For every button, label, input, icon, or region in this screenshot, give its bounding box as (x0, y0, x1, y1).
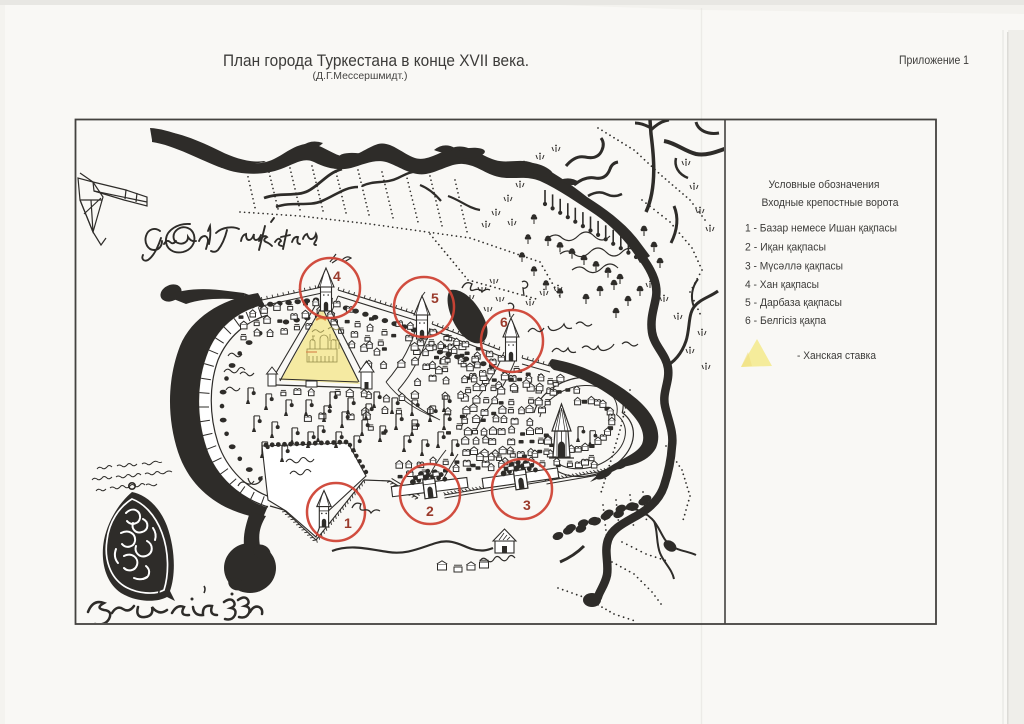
svg-text:Входные крепостные ворота: Входные крепостные ворота (762, 197, 900, 209)
svg-text:(Д.Г.Мессершмидт.): (Д.Г.Мессершмидт.) (313, 70, 408, 82)
svg-text:Приложение 1: Приложение 1 (899, 55, 969, 67)
svg-text:4 - Хан қақпасы: 4 - Хан қақпасы (745, 279, 819, 291)
svg-text:1 - Базар немесе Ишан қақпасы: 1 - Базар немесе Ишан қақпасы (745, 223, 897, 235)
svg-text:4: 4 (333, 268, 341, 284)
svg-text:2: 2 (426, 503, 434, 519)
svg-text:1: 1 (344, 515, 352, 531)
svg-text:5 - Дарбаза қақпасы: 5 - Дарбаза қақпасы (745, 297, 842, 309)
svg-text:Условные обозначения: Условные обозначения (769, 179, 880, 191)
svg-text:План города Туркестана в конце: План города Туркестана в конце XVII века… (223, 51, 529, 70)
svg-text:6: 6 (500, 314, 508, 330)
svg-text:2 - Иқан қақпасы: 2 - Иқан қақпасы (745, 242, 826, 254)
svg-text:5: 5 (431, 290, 439, 306)
svg-text:3 - Мүсәллә қақпасы: 3 - Мүсәллә қақпасы (745, 261, 843, 273)
svg-text:6 - Белгісіз қақпа: 6 - Белгісіз қақпа (745, 315, 827, 327)
svg-text:- Ханская ставка: - Ханская ставка (797, 350, 877, 362)
svg-text:3: 3 (523, 497, 531, 513)
